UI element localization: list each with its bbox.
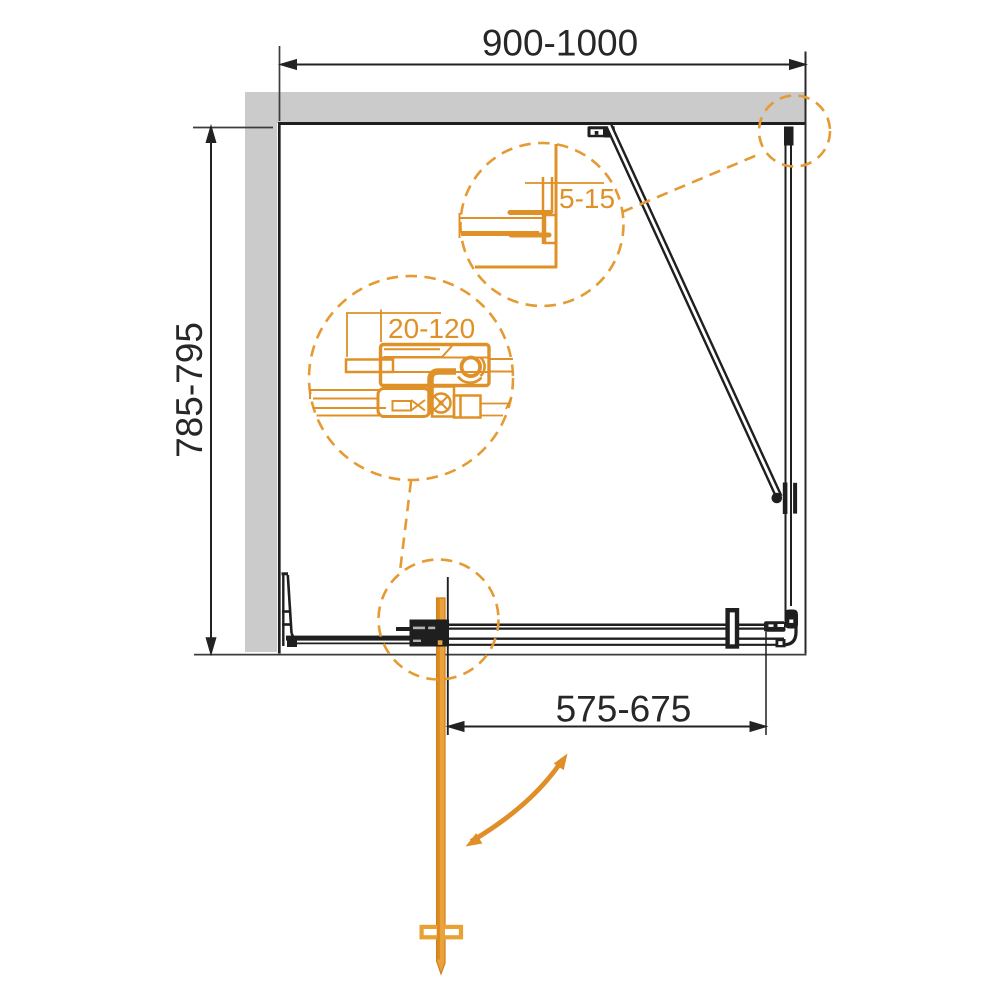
svg-text:785-795: 785-795 xyxy=(169,322,210,458)
svg-text:20-120: 20-120 xyxy=(388,313,475,344)
svg-text:5-15: 5-15 xyxy=(559,183,615,214)
svg-text:900-1000: 900-1000 xyxy=(482,23,638,64)
svg-text:575-675: 575-675 xyxy=(556,689,692,730)
